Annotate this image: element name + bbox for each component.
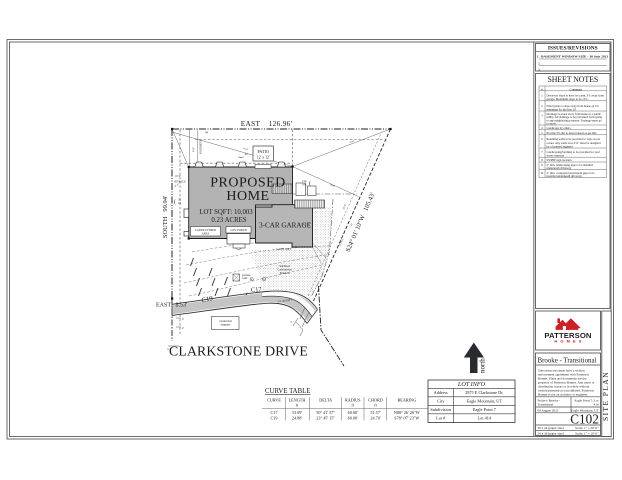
svg-text:16' 6": 16' 6" — [175, 175, 181, 178]
svg-text:water structure: water structure — [547, 153, 565, 157]
svg-text:44: 44 — [245, 152, 249, 156]
svg-text:CLARKSTONE DRIVE: CLARKSTONE DRIVE — [169, 344, 308, 359]
svg-text:toilet: toilet — [242, 277, 248, 280]
svg-text:BEARING: BEARING — [397, 398, 416, 403]
svg-text:construction: construction — [219, 320, 233, 323]
svg-text:Landscape by others: Landscape by others — [547, 126, 572, 130]
svg-text:Homes is not an architect or e: Homes is not an architect or engineer. — [538, 393, 588, 397]
svg-text:36 x 24 (paper size): 36 x 24 (paper size) — [538, 426, 564, 430]
svg-text:7'-6": 7'-6" — [349, 223, 354, 229]
svg-text:Eagle Point 7: Eagle Point 7 — [473, 407, 497, 412]
svg-text:ft: ft — [296, 402, 299, 407]
svg-text:City: City — [437, 399, 445, 404]
svg-text:10'-0": 10'-0" — [342, 203, 347, 210]
svg-text:14'-0": 14'-0" — [303, 222, 311, 226]
svg-text:16: 16 — [178, 201, 182, 205]
svg-text:C19: C19 — [271, 415, 278, 420]
svg-text:wwf: wwf — [330, 183, 336, 188]
svg-text:Entrance: Entrance — [280, 272, 290, 275]
svg-text:Transitional: Transitional — [538, 403, 554, 407]
svg-text:53.09': 53.09' — [292, 410, 302, 415]
svg-text:Subdivision: Subdivision — [430, 407, 451, 412]
svg-text:by a licensed engineer: by a licensed engineer — [547, 145, 573, 149]
svg-text:2.: 2. — [538, 61, 541, 65]
svg-text:SHEET NOTES: SHEET NOTES — [547, 75, 598, 84]
svg-text:24.88': 24.88' — [292, 415, 302, 420]
svg-text:N88° 26' 26"W: N88° 26' 26"W — [394, 410, 420, 415]
svg-text:24 x 36 (paper size): 24 x 36 (paper size) — [538, 431, 564, 435]
svg-text:wwf: wwf — [243, 147, 248, 151]
svg-text:SITE PLAN: SITE PLAN — [601, 371, 610, 421]
svg-text:Stabilized: Stabilized — [279, 265, 290, 268]
svg-text:Scale: 1" = 10'-0": Scale: 1" = 10'-0" — [575, 431, 599, 435]
svg-text:10k: 10k — [302, 183, 307, 187]
svg-text:HOME: HOME — [226, 189, 269, 204]
svg-text:installed underneath driveway: installed underneath driveway — [547, 174, 583, 178]
svg-text:(: ( — [309, 180, 311, 187]
svg-text:ft: ft — [351, 402, 354, 407]
svg-text:Scale: 1" = 20'-0": Scale: 1" = 20'-0" — [575, 426, 599, 430]
svg-text:LAWN SQFT: LAWN SQFT — [276, 248, 291, 251]
svg-text:EAST 8.53': EAST 8.53' — [156, 303, 187, 309]
svg-text:51.57': 51.57' — [370, 410, 380, 415]
svg-text:4': 4' — [182, 318, 184, 321]
svg-text:LOT INFO: LOT INFO — [457, 381, 486, 388]
svg-text:SWPPP sign location: SWPPP sign location — [547, 158, 573, 162]
svg-text:(: ( — [238, 156, 245, 158]
svg-text:garage. Maximum slope to be 13: garage. Maximum slope to be 13% — [547, 97, 589, 101]
svg-text:4': 4' — [182, 327, 184, 330]
svg-text:LOT SQFT: 10,003: LOT SQFT: 10,003 — [199, 209, 253, 216]
svg-text:CANTILEVERED: CANTILEVERED — [195, 229, 216, 232]
svg-text:C17: C17 — [251, 286, 263, 294]
svg-text:24.70': 24.70' — [370, 415, 380, 420]
svg-text:S24° 01' 10"W 105.43': S24° 01' 10"W 105.43' — [345, 192, 377, 253]
svg-text:dumpster: dumpster — [221, 323, 231, 326]
svg-text:414: 414 — [594, 403, 599, 407]
svg-text:Comments: Comments — [569, 88, 583, 92]
svg-text:0.23 ACRES: 0.23 ACRES — [211, 217, 246, 224]
svg-text:north: north — [479, 358, 487, 373]
svg-text:Address: Address — [434, 390, 448, 395]
svg-text:9'-8": 9'-8" — [193, 147, 196, 152]
svg-text:06 August 2021: 06 August 2021 — [538, 409, 559, 413]
svg-text:BASEMENT: BASEMENT — [200, 140, 203, 154]
svg-text:3.: 3. — [538, 67, 541, 71]
svg-text:Construction: Construction — [278, 269, 293, 272]
svg-text:CURVE: CURVE — [267, 398, 281, 403]
svg-text:50° 41' 57": 50° 41' 57" — [316, 410, 335, 415]
svg-text:4': 4' — [289, 320, 293, 324]
svg-text:12' x 12': 12' x 12' — [257, 155, 270, 159]
svg-text:SETBACK: SETBACK — [174, 181, 186, 184]
svg-text:Lot 414: Lot 414 — [478, 416, 492, 421]
svg-text:60.00': 60.00' — [348, 410, 358, 415]
svg-text:C17: C17 — [271, 410, 278, 415]
svg-text:SOUTH 99.94': SOUTH 99.94' — [162, 196, 169, 238]
svg-text:DELTA: DELTA — [319, 398, 332, 403]
svg-text:PATIO: PATIO — [257, 149, 268, 154]
svg-text:HOMES: HOMES — [554, 339, 584, 344]
svg-text:(: ( — [174, 199, 176, 206]
svg-text:EAST 126.96': EAST 126.96' — [241, 119, 293, 128]
svg-text:ft: ft — [374, 402, 377, 407]
svg-text:to street.: to street. — [547, 122, 557, 126]
svg-text:S78° 07' 23"W: S78° 07' 23"W — [394, 415, 419, 420]
svg-text:C102: C102 — [570, 411, 599, 426]
svg-text:Provide 3% dirt to sewer later: Provide 3% dirt to sewer lateral as per … — [547, 131, 598, 135]
svg-text:44: 44 — [205, 131, 209, 135]
svg-text:underneath driveway: underneath driveway — [547, 166, 572, 170]
svg-text:Brooke - Transitional: Brooke - Transitional — [538, 357, 597, 364]
svg-text:60.00': 60.00' — [348, 415, 358, 420]
svg-text:AREA: AREA — [202, 232, 210, 235]
svg-text:ISSUES/REVISIONS: ISSUES/REVISIONS — [548, 46, 598, 52]
svg-text:Lot #: Lot # — [436, 416, 446, 421]
svg-text:2975 E Clarkstone Dr.: 2975 E Clarkstone Dr. — [465, 390, 503, 395]
svg-text:4'-0": 4'-0" — [174, 183, 180, 188]
svg-text:CURVE TABLE: CURVE TABLE — [265, 388, 310, 395]
svg-text:wwf: wwf — [349, 139, 354, 143]
svg-text:10' PUE: 10' PUE — [338, 238, 344, 247]
svg-text:23° 45' 15": 23° 45' 15" — [316, 415, 335, 420]
svg-text:1. BASEMENT WINDOW SIZE - 30: 1. BASEMENT WINDOW SIZE - 30 July 2021 — [537, 55, 609, 59]
svg-text:10: 10 — [540, 171, 543, 175]
svg-text:COV. PORCH: COV. PORCH — [230, 229, 246, 232]
